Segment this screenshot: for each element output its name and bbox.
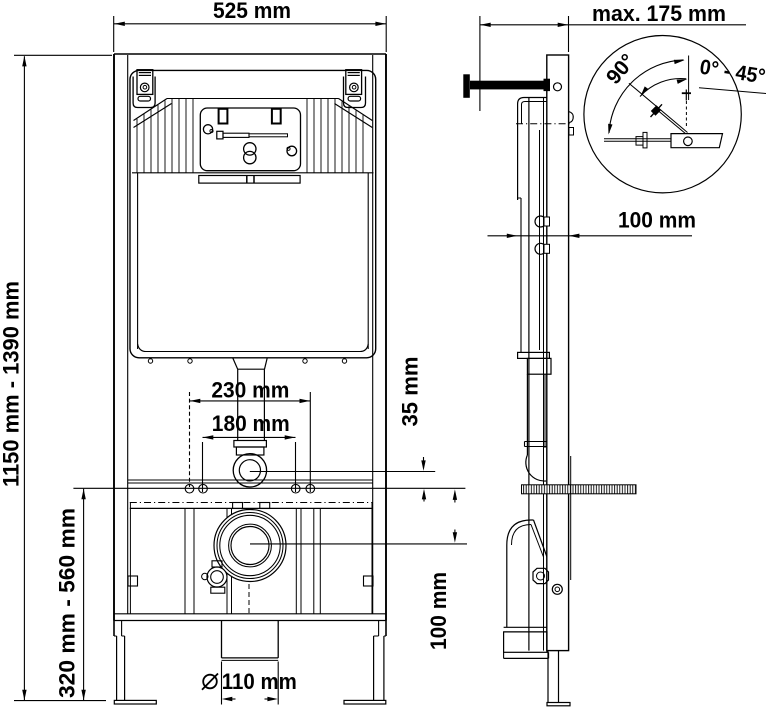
- svg-text:110 mm: 110 mm: [222, 669, 297, 694]
- svg-text:1150 mm - 1390 mm: 1150 mm - 1390 mm: [0, 281, 23, 487]
- svg-text:90°: 90°: [602, 50, 640, 89]
- svg-text:35 mm: 35 mm: [398, 357, 423, 427]
- svg-text:230 mm: 230 mm: [211, 378, 289, 403]
- svg-text:525 mm: 525 mm: [213, 0, 291, 23]
- svg-text:180 mm: 180 mm: [212, 411, 290, 436]
- svg-text:320 mm - 560 mm: 320 mm - 560 mm: [55, 508, 80, 698]
- svg-text:100 mm: 100 mm: [618, 208, 696, 233]
- svg-text:100 mm: 100 mm: [426, 572, 451, 650]
- svg-text:max. 175 mm: max. 175 mm: [592, 1, 726, 26]
- svg-text:0° - 45°: 0° - 45°: [698, 56, 766, 89]
